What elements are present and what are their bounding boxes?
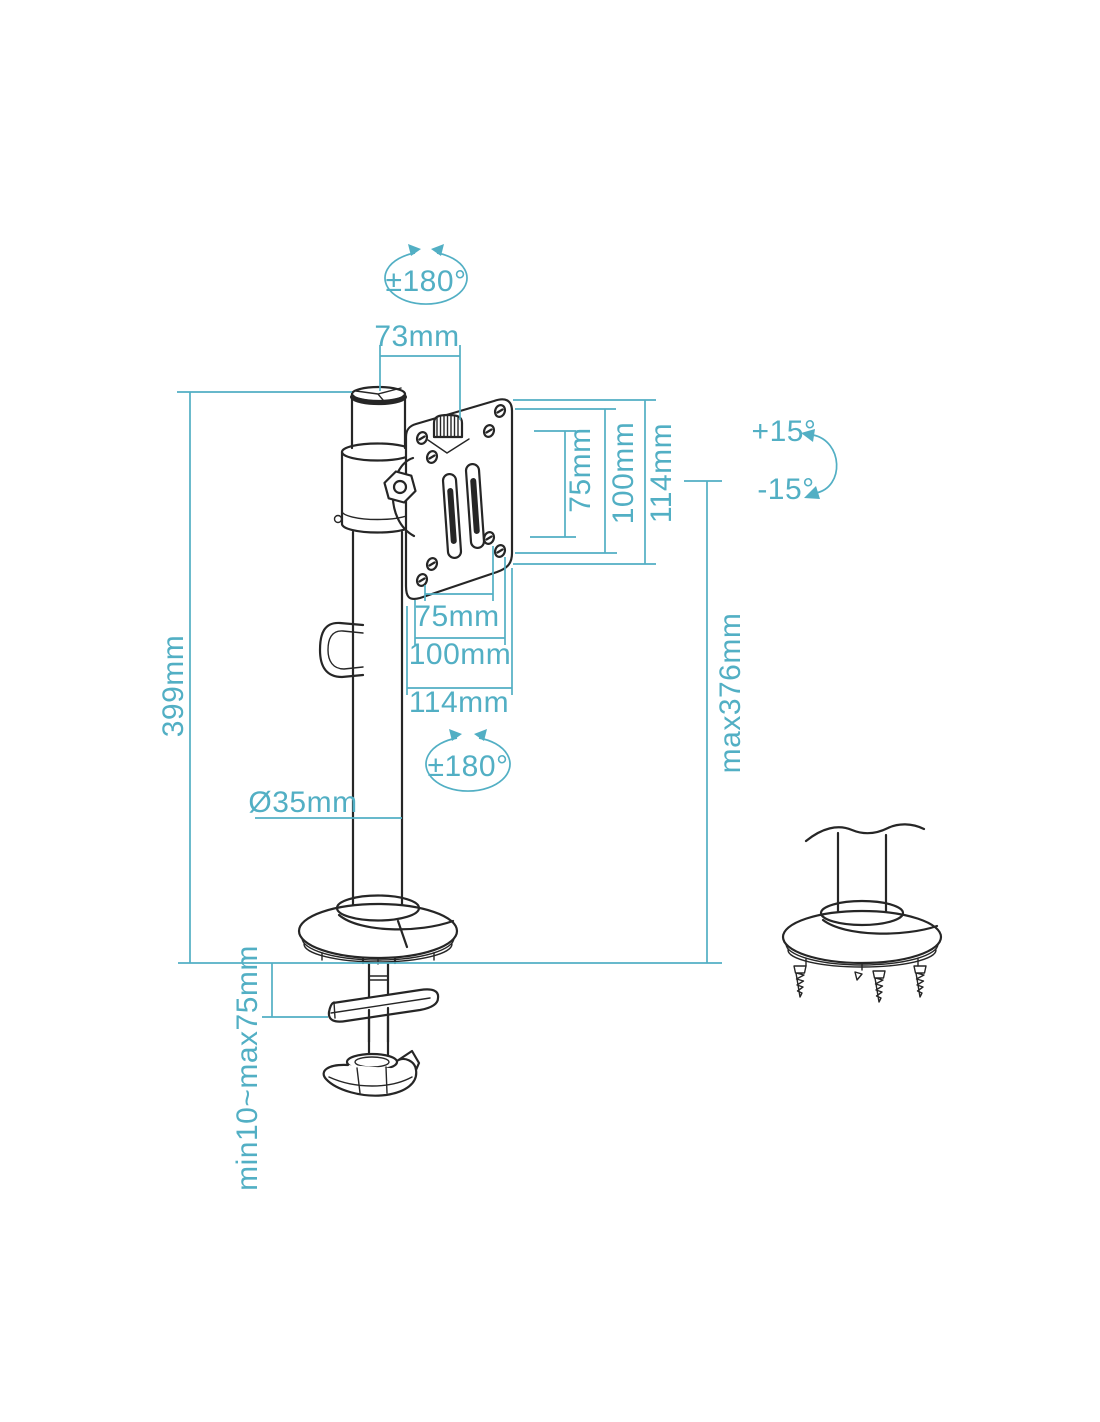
tilt-down-label: -15°	[757, 473, 814, 506]
dim-desk-thickness: min10~max75mm	[231, 945, 328, 1191]
technical-drawing: ±180° 73mm 399mm min10~max75mm max376mm …	[0, 0, 1100, 1422]
cable-clip	[320, 623, 363, 677]
vesa-75-vertical-label: 75mm	[564, 427, 597, 512]
pole	[353, 532, 402, 910]
base	[299, 896, 457, 965]
pole-diameter-label: Ø35mm	[248, 786, 357, 819]
max-height-label: max376mm	[714, 613, 747, 774]
clamp-knob	[324, 1051, 419, 1096]
desk-clamp	[324, 963, 438, 1096]
dim-max-height: max376mm	[684, 481, 747, 963]
dimensions: ±180° 73mm 399mm min10~max75mm max376mm …	[157, 244, 837, 1191]
grommet-base-detail	[783, 824, 941, 1002]
vesa-100-vertical-label: 100mm	[607, 422, 640, 525]
dim-pole-rotation: ±180°	[426, 729, 510, 791]
top-rotation-label: ±180°	[385, 265, 466, 298]
dim-vesa-vertical: 75mm 100mm 114mm	[513, 400, 678, 564]
pole-rotation-label: ±180°	[427, 750, 508, 783]
vesa-114-vertical-label: 114mm	[645, 423, 678, 523]
dim-top-width: 73mm	[374, 320, 460, 420]
desk-thickness-label: min10~max75mm	[231, 945, 264, 1191]
pole-height-label: 399mm	[157, 635, 190, 738]
top-width-label: 73mm	[374, 320, 459, 353]
tilt-up-label: +15°	[752, 415, 817, 448]
main-view	[299, 387, 512, 1096]
vesa-114-horizontal-label: 114mm	[409, 686, 509, 719]
vesa-100-horizontal-label: 100mm	[409, 638, 512, 671]
dim-pole-height: 399mm	[157, 392, 352, 963]
dim-top-rotation: ±180°	[385, 244, 467, 304]
mounting-screws	[794, 966, 926, 1002]
vesa-75-horizontal-label: 75mm	[414, 600, 499, 633]
pole-cap	[352, 387, 405, 448]
dim-tilt: +15° -15°	[752, 415, 837, 506]
dim-pole-diameter: Ø35mm	[248, 786, 402, 819]
